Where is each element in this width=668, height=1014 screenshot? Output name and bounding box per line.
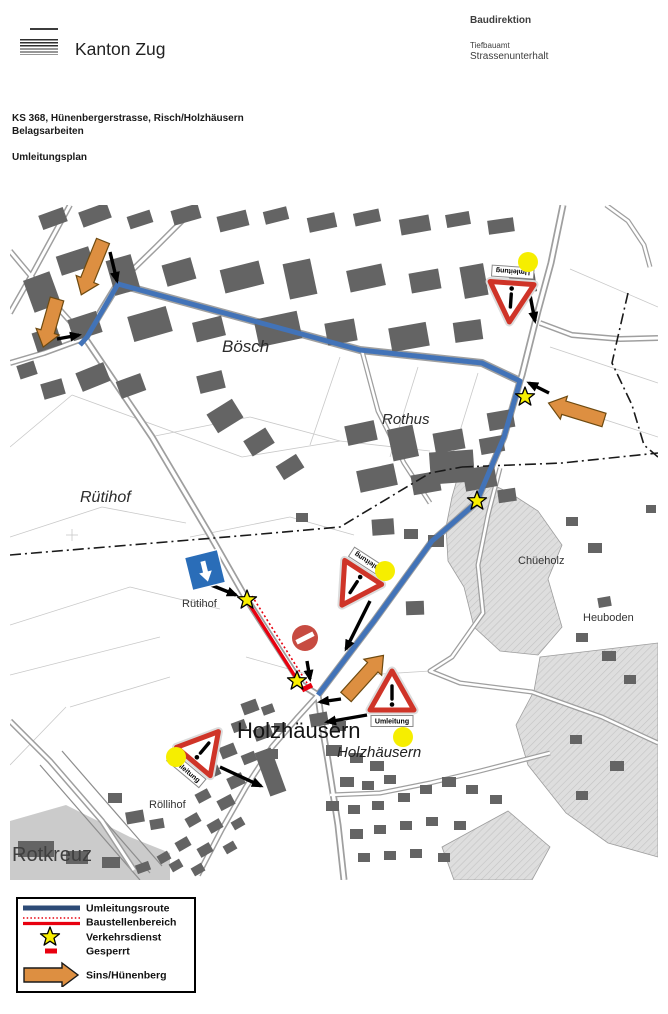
legend-label-route-line: Umleitungsroute: [86, 903, 170, 915]
place-label: Bösch: [222, 337, 269, 356]
place-label: Heuboden: [583, 612, 634, 624]
legend-label-construction-line: Baustellenbereich: [86, 917, 176, 929]
svg-text:Umleitung: Umleitung: [375, 719, 409, 726]
place-label: Rothus: [382, 411, 430, 428]
no-entry-sign: [292, 625, 318, 651]
office-line2: Strassenunterhalt: [470, 51, 548, 62]
detour-map: UmleitungUmleitungUmleitungUmleitungBösc…: [10, 205, 658, 880]
office-line1: Tiefbauamt: [470, 41, 510, 50]
document-title-line1: KS 368, Hünenbergerstrasse, Risch/Holzhä…: [12, 113, 244, 124]
place-label: Rütihof: [182, 598, 218, 610]
kanton-zug-logo-icon: [20, 28, 60, 55]
umleitung-board: Umleitung: [371, 716, 413, 727]
mandatory-direction-sign: [184, 549, 225, 590]
yellow-dot-marker: [518, 252, 538, 272]
legend-label-traffic-star: Verkehrsdienst: [86, 932, 162, 944]
document-subtitle: Umleitungsplan: [12, 152, 87, 163]
legend-canvas: UmleitungsrouteBaustellenbereichVerkehrs…: [18, 899, 190, 987]
place-label: Holzhäusern: [237, 718, 361, 743]
legend: UmleitungsrouteBaustellenbereichVerkehrs…: [16, 897, 196, 993]
canton-name: Kanton Zug: [75, 39, 165, 60]
document-title-line2: Belagsarbeiten: [12, 126, 84, 137]
place-label: Holzhäusern: [337, 744, 421, 761]
place-label: Röllihof: [149, 799, 187, 811]
yellow-dot-marker: [375, 561, 395, 581]
legend-label-closed-dash: Gesperrt: [86, 946, 130, 958]
place-label: Rütihof: [80, 489, 132, 506]
legend-label-direction-arrow: Sins/Hünenberg: [86, 970, 167, 982]
detour-map-canvas: UmleitungUmleitungUmleitungUmleitungBösc…: [10, 205, 658, 880]
place-label: Rotkreuz: [12, 844, 92, 866]
place-label: Chüeholz: [518, 555, 564, 567]
detour-plan-page: Kanton Zug Baudirektion Tiefbauamt Stras…: [0, 0, 668, 1014]
department-label: Baudirektion: [470, 15, 531, 26]
yellow-dot-marker: [166, 747, 186, 767]
